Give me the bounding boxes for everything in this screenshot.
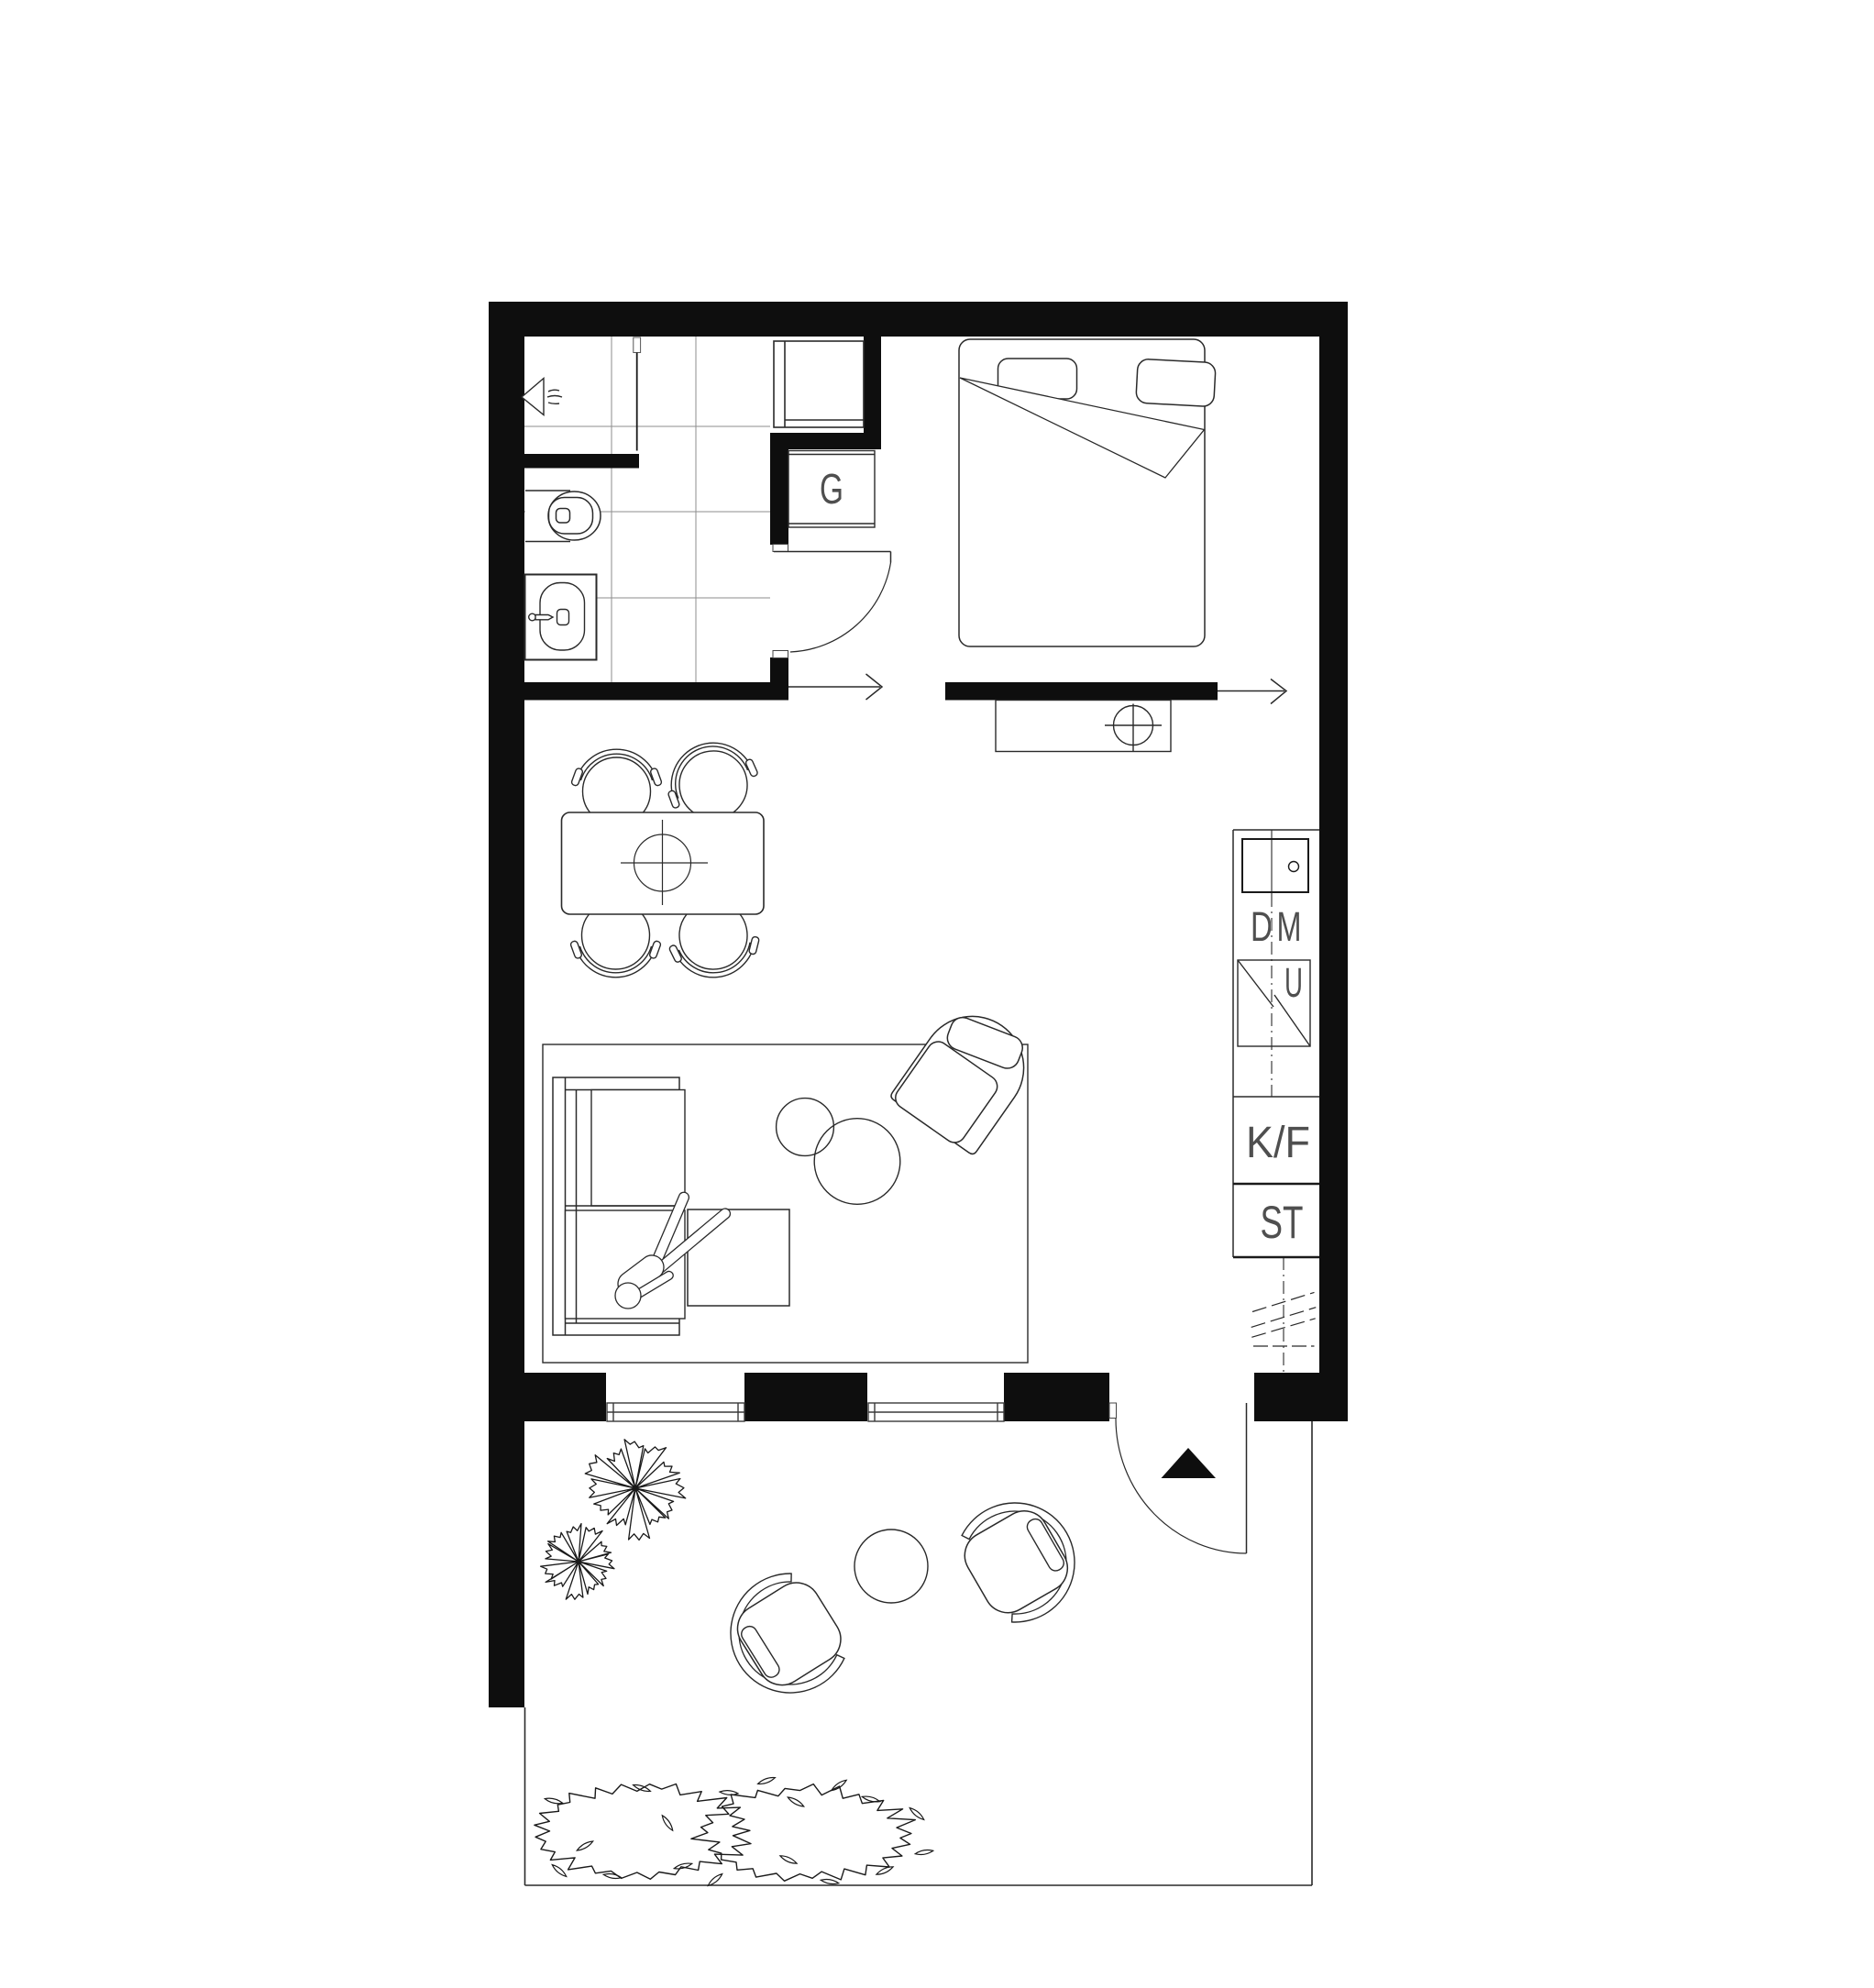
svg-text:M: M [1277, 903, 1302, 950]
svg-text:D: D [1251, 903, 1273, 950]
svg-text:K/F: K/F [1246, 1119, 1310, 1167]
svg-text:G: G [820, 465, 843, 513]
svg-text:ST: ST [1261, 1197, 1304, 1248]
svg-text:U: U [1284, 959, 1303, 1006]
